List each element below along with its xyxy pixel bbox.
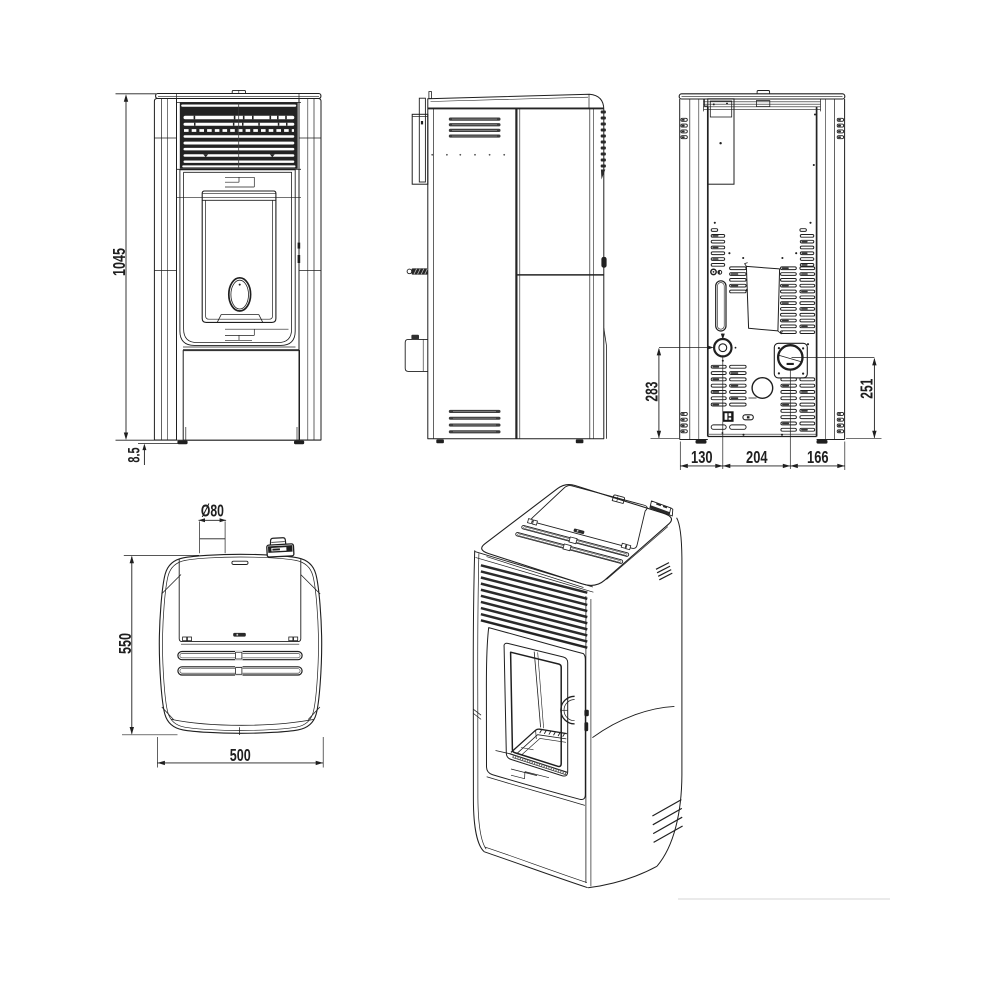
svg-text:500: 500 <box>230 745 251 765</box>
svg-text:251: 251 <box>857 378 877 398</box>
svg-text:204: 204 <box>746 447 768 467</box>
svg-text:283: 283 <box>641 382 661 402</box>
svg-text:Ø80: Ø80 <box>201 501 224 521</box>
svg-text:1045: 1045 <box>109 248 129 276</box>
svg-text:550: 550 <box>115 633 135 654</box>
svg-text:8.5: 8.5 <box>125 447 143 462</box>
svg-text:130: 130 <box>691 447 713 467</box>
svg-text:166: 166 <box>807 447 829 467</box>
